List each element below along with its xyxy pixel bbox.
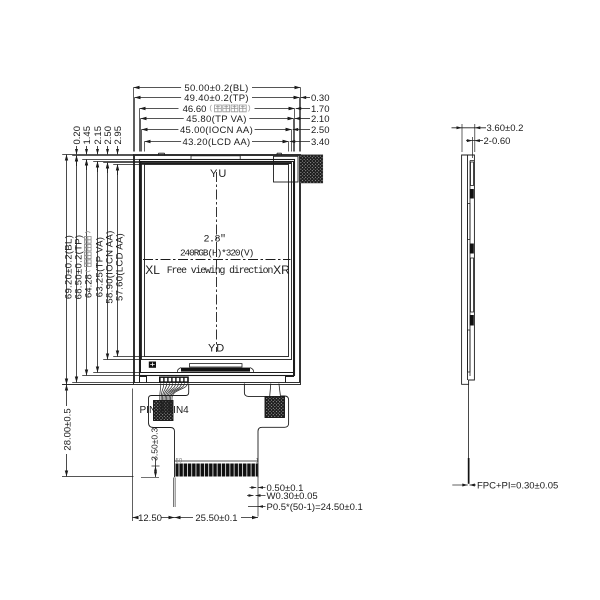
svg-text:25.50±0.1: 25.50±0.1 bbox=[195, 513, 237, 524]
svg-text:XL: XL bbox=[145, 263, 160, 277]
svg-text:1.45: 1.45 bbox=[82, 126, 93, 145]
svg-text:240RGB(H)*320(V): 240RGB(H)*320(V) bbox=[180, 248, 254, 259]
svg-text:FPC+PI=0.30±0.05: FPC+PI=0.30±0.05 bbox=[477, 480, 558, 491]
svg-text:12.50: 12.50 bbox=[138, 513, 162, 524]
svg-text:2.95: 2.95 bbox=[113, 126, 124, 145]
svg-text:P0.5*(50-1)=24.50±0.1: P0.5*(50-1)=24.50±0.1 bbox=[267, 502, 363, 513]
svg-text:YD: YD bbox=[208, 343, 225, 355]
svg-text:2.10: 2.10 bbox=[311, 114, 330, 125]
svg-text:W0.30±0.05: W0.30±0.05 bbox=[267, 491, 318, 502]
svg-text:3.60±0.2: 3.60±0.2 bbox=[487, 123, 524, 134]
svg-text:64.28: 64.28 bbox=[84, 274, 95, 298]
svg-text:2-0.60: 2-0.60 bbox=[484, 136, 511, 147]
svg-text:28.00±0.5: 28.00±0.5 bbox=[63, 408, 74, 450]
svg-text:Free viewing direction: Free viewing direction bbox=[167, 265, 274, 276]
svg-text:3.40: 3.40 bbox=[311, 137, 330, 148]
svg-text:XR: XR bbox=[273, 263, 290, 277]
svg-text:3.50±0.3: 3.50±0.3 bbox=[149, 428, 159, 461]
svg-text:43.20(LCD AA): 43.20(LCD AA) bbox=[182, 137, 250, 148]
svg-text:2.50: 2.50 bbox=[311, 125, 330, 136]
svg-text:45.00(IOCN AA): 45.00(IOCN AA) bbox=[180, 125, 253, 136]
svg-text:2.8″: 2.8″ bbox=[203, 234, 225, 246]
svg-text:50: 50 bbox=[176, 459, 183, 465]
svg-text:0.30: 0.30 bbox=[311, 93, 330, 104]
svg-text:45.80(TP VA): 45.80(TP VA) bbox=[186, 114, 247, 125]
svg-text:57.60(LCD AA): 57.60(LCD AA) bbox=[115, 233, 126, 301]
svg-text:49.40±0.2(TP): 49.40±0.2(TP) bbox=[184, 93, 249, 104]
svg-text:YU: YU bbox=[210, 168, 227, 180]
